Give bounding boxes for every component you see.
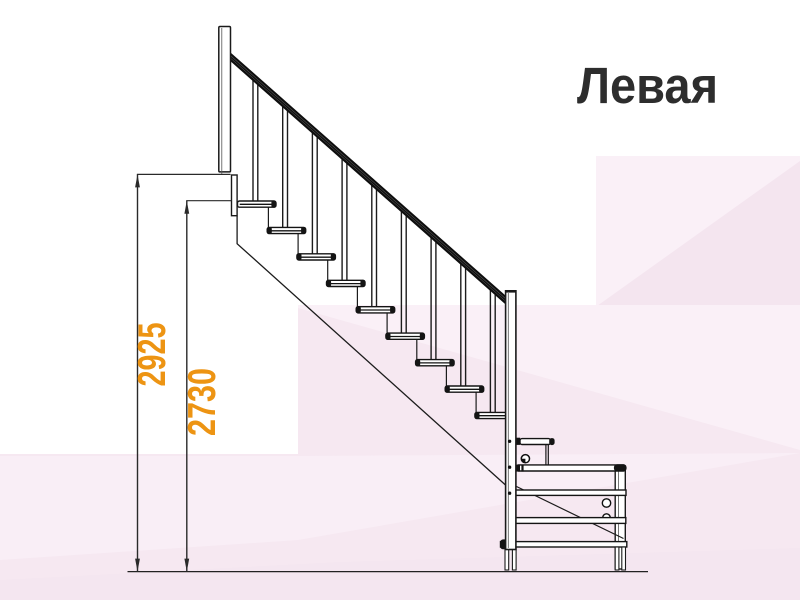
svg-text:2925: 2925 — [131, 323, 174, 387]
svg-text:2730: 2730 — [181, 368, 224, 436]
svg-text:Левая: Левая — [577, 57, 718, 114]
